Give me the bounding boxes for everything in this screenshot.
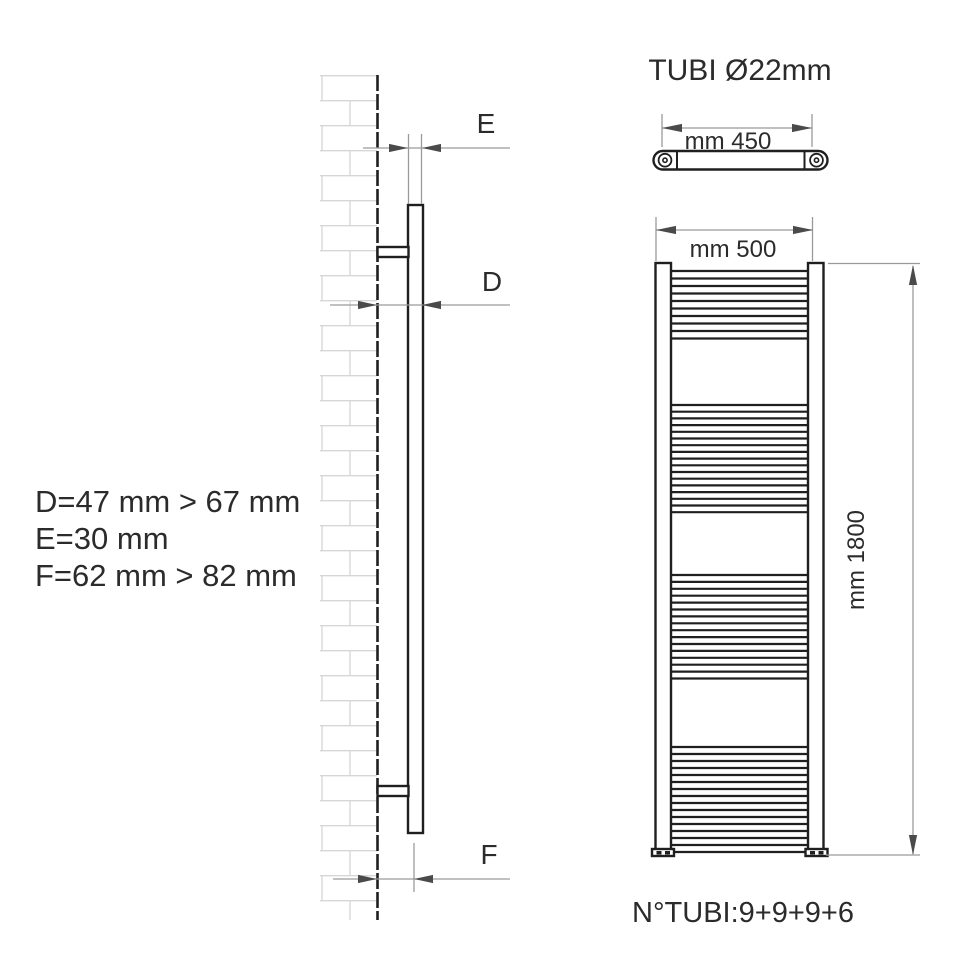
dim-f-arrow-right: [414, 875, 433, 883]
tube-count-label: N°TUBI:9+9+9+6: [632, 897, 854, 929]
tube-end-fitting-right: [810, 154, 823, 167]
radiator-dimension-diagram: E D F D=47 mm > 67 mm E=30 mm F=62 mm > …: [0, 0, 960, 960]
right-foot: [806, 849, 828, 856]
dim-1800: mm 1800: [826, 264, 920, 856]
dim-e-label: E: [477, 108, 496, 139]
dim-450-arrow-left: [662, 124, 682, 132]
legend-line-e: E=30 mm: [35, 521, 169, 556]
right-collector: [808, 263, 824, 854]
dim-1800-label: mm 1800: [843, 510, 870, 610]
top-view-tube: [654, 151, 828, 170]
left-foot: [652, 849, 674, 856]
dim-450-arrow-right: [792, 124, 812, 132]
front-view-title: TUBI Ø22mm: [648, 54, 831, 87]
dim-d-label: D: [482, 266, 502, 297]
side-view-diagram: E D F: [320, 75, 510, 920]
wall-bracket-bottom: [378, 786, 409, 796]
dim-e: E: [363, 108, 510, 204]
radiator-rungs: [671, 271, 808, 852]
radiator-side-panel: [408, 205, 423, 833]
legend-line-f: F=62 mm > 82 mm: [35, 558, 297, 593]
dim-500-arrow-left: [656, 226, 676, 234]
dim-450: mm 450: [662, 114, 812, 155]
dim-e-arrow-left: [389, 144, 408, 152]
wall-bracket-top: [378, 247, 409, 257]
dim-500-arrow-right: [793, 226, 813, 234]
tube-end-fitting-left: [659, 154, 672, 167]
dim-500: mm 500: [656, 217, 813, 263]
dim-e-arrow-right: [422, 144, 441, 152]
left-collector: [656, 263, 672, 854]
legend: D=47 mm > 67 mm E=30 mm F=62 mm > 82 mm: [35, 484, 300, 593]
dim-f-label: F: [480, 839, 497, 870]
legend-line-d: D=47 mm > 67 mm: [35, 484, 300, 519]
dim-1800-arrow-bottom: [909, 835, 917, 855]
dim-1800-arrow-top: [909, 265, 917, 285]
diagram-svg: E D F D=47 mm > 67 mm E=30 mm F=62 mm > …: [0, 0, 960, 960]
front-view-diagram: TUBI Ø22mm mm 450 mm 500: [632, 54, 920, 929]
radiator-front: [652, 263, 828, 856]
tube-body: [654, 151, 828, 170]
dim-500-label: mm 500: [690, 236, 777, 263]
dim-d-arrow-right: [422, 301, 441, 309]
brick-wall: [320, 75, 377, 920]
